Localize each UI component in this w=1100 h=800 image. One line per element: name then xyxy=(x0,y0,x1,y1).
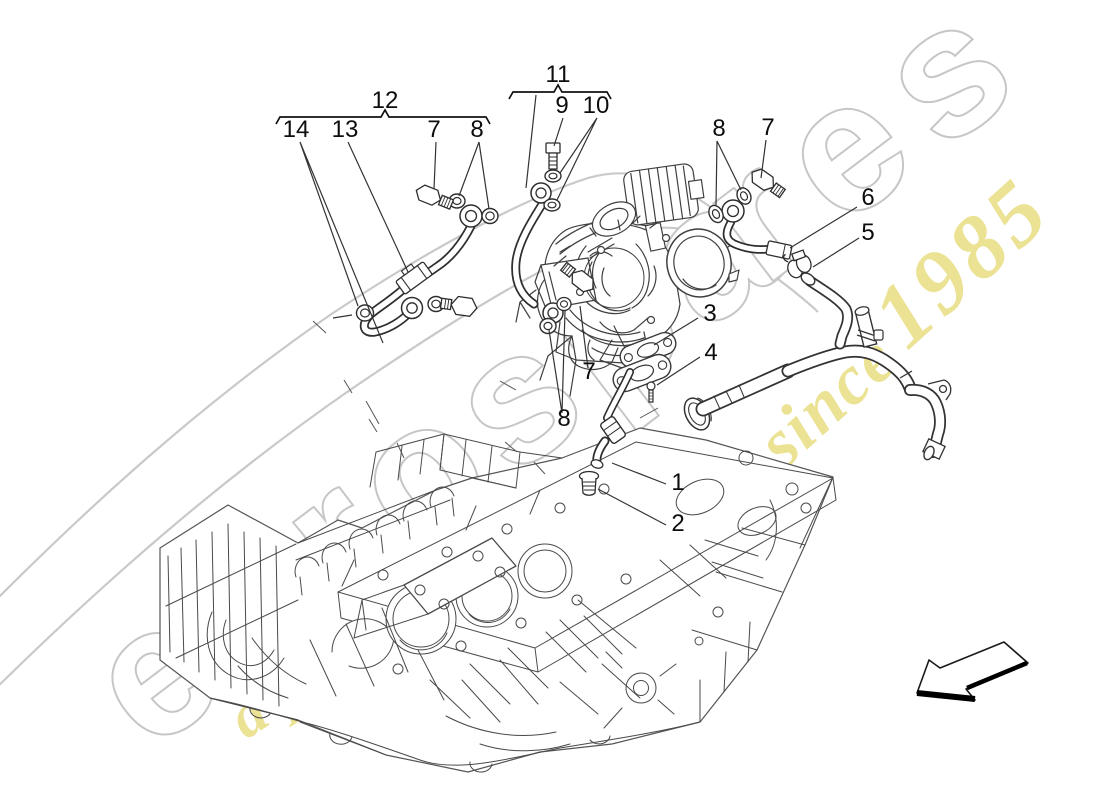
svg-text:14: 14 xyxy=(283,116,310,143)
svg-text:6: 6 xyxy=(861,184,874,211)
svg-text:12: 12 xyxy=(372,87,399,114)
svg-text:9: 9 xyxy=(555,92,568,119)
svg-text:3: 3 xyxy=(703,300,716,327)
svg-text:8: 8 xyxy=(470,116,483,143)
svg-text:7: 7 xyxy=(761,114,774,141)
svg-text:5: 5 xyxy=(861,219,874,246)
svg-text:10: 10 xyxy=(583,92,610,119)
svg-text:7: 7 xyxy=(427,116,440,143)
svg-text:11: 11 xyxy=(546,61,571,88)
svg-text:4: 4 xyxy=(704,339,717,366)
svg-text:8: 8 xyxy=(557,405,570,432)
svg-text:1: 1 xyxy=(671,469,684,496)
svg-text:7: 7 xyxy=(582,358,595,385)
svg-text:8: 8 xyxy=(712,115,725,142)
svg-text:2: 2 xyxy=(671,510,684,537)
svg-text:13: 13 xyxy=(332,116,359,143)
